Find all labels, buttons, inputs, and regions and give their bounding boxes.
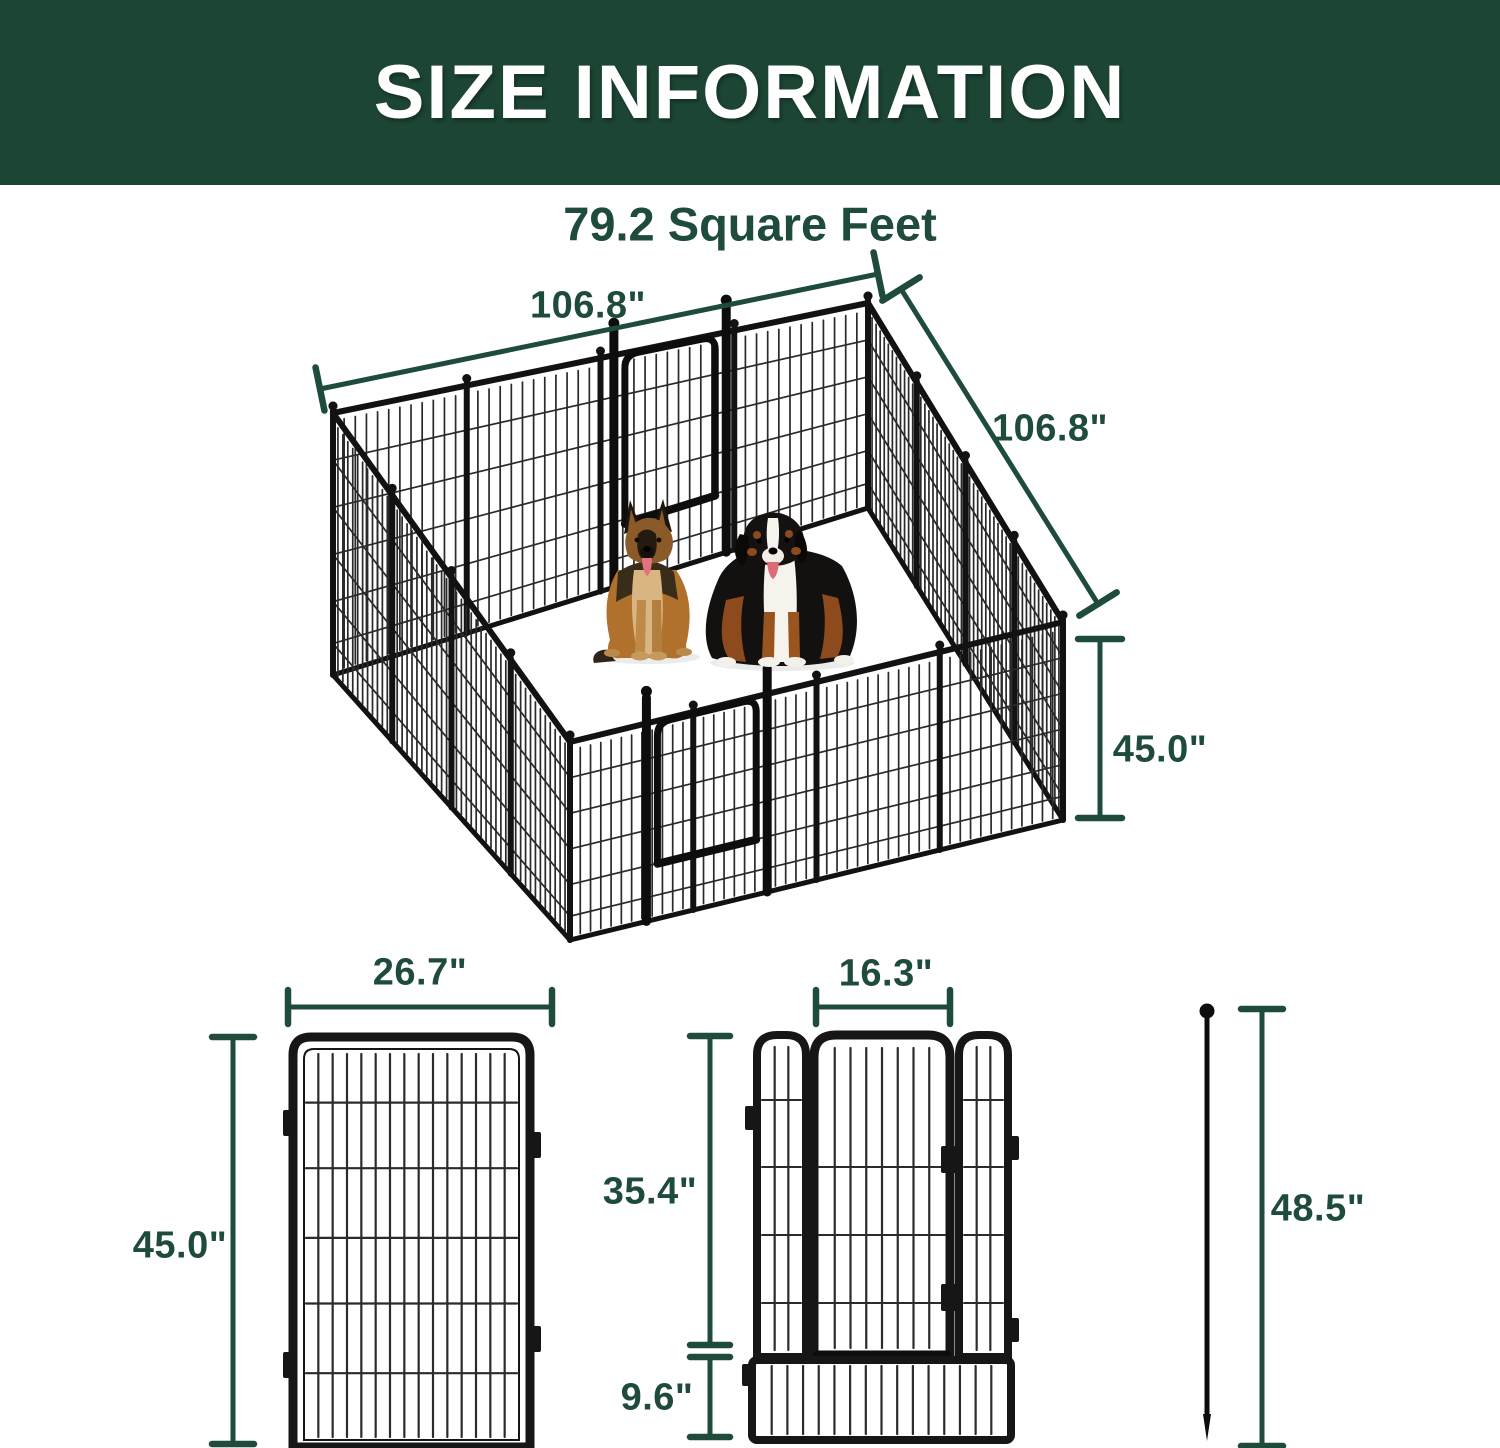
pen-depth-label: 106.8" [992, 408, 1108, 451]
wall-front-left [329, 402, 575, 941]
door-panel-diagram [742, 1035, 1019, 1440]
door-bottom-height-label: 9.6" [621, 1377, 694, 1420]
playpen-isometric-illustration [329, 292, 1068, 941]
stake-height-label: 48.5" [1271, 1188, 1365, 1231]
wall-back-right [864, 292, 1068, 821]
panel-height-label: 45.0" [133, 1225, 227, 1268]
pen-width-label: 106.8" [530, 285, 646, 328]
ground-stake-diagram [1200, 1004, 1215, 1442]
door-height-label: 35.4" [603, 1171, 697, 1214]
door-width-label: 16.3" [839, 953, 933, 996]
detail-diagrams [283, 1004, 1215, 1448]
single-panel-diagram [283, 1037, 541, 1447]
panel-width-label: 26.7" [373, 952, 467, 995]
pen-height-label: 45.0" [1113, 729, 1207, 772]
